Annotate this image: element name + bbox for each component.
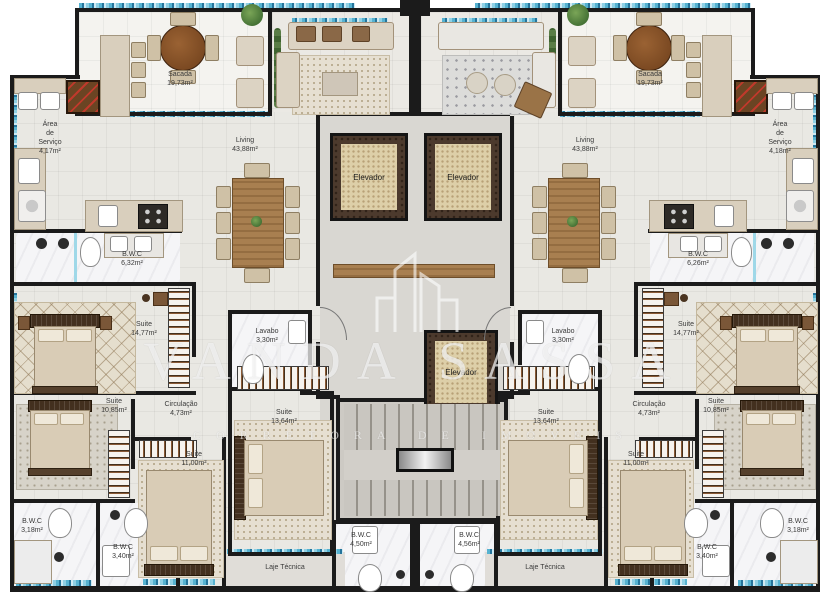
pillow [34,413,58,425]
armchair-balcony-right-1 [568,36,596,66]
room-label-laje-right: Laje Técnica [503,563,587,572]
sofa-cushion [352,26,370,42]
floor-plan: Elevador Elevador Elevador [0,0,830,600]
room-label-sacada-left: Sacada19,73m² [140,70,220,88]
wall-hall-connector-left [316,395,340,399]
pillow [654,546,682,561]
room-label-sacada-right: Sacada19,73m² [610,70,690,88]
nightstand [720,316,732,330]
stairs-rail [396,448,454,472]
room-label-suite10-right: Suite10,85m² [687,397,745,415]
table-plant [251,216,262,227]
dining-chair [601,186,616,208]
laundry-sink [18,92,38,110]
dining-chair [562,163,588,178]
toilet-bwc-center-left [358,564,382,592]
watermark-subtitle: CORRETORA DE IMÓVEIS [0,428,830,443]
closet-item [680,294,688,302]
dining-chair [216,186,231,208]
pillow [624,546,652,561]
watermark-title: VANDA SASSA [0,330,830,392]
dining-chair [285,186,300,208]
room-label-suite13-left: Suite13,64m² [252,408,316,426]
elevator-shaft-1: Elevador [330,133,408,221]
toilet-master-left [80,237,101,267]
round-table-left [160,25,206,71]
pillow [772,413,796,425]
pillow [746,413,770,425]
pillow [569,478,584,508]
headboard-suite11-left [144,564,214,576]
elevator-shaft-2: Elevador [424,133,502,221]
dining-chair [216,238,231,260]
dining-chair [285,238,300,260]
room-label-living-left: Living43,88m² [205,136,285,154]
pendant-light [783,238,794,249]
stairs-upper-flight [344,404,500,450]
wall-suite13-right-right [598,391,602,556]
room-label-circulacao-left: Circulação4,73m² [148,400,214,418]
sofa-cushion [322,26,342,42]
barbecue-left [66,80,100,114]
room-label-bwc-center-left: B.W.C4,50m² [330,531,392,549]
watermark-logo [365,240,465,332]
wall-divider-balcony-left [268,8,272,115]
shower-glass-right [753,233,756,282]
wall-divider-balcony-right [558,8,562,115]
fixture [110,510,120,520]
nightstand [802,316,814,330]
wall-bwc-center-divider [410,520,420,587]
pillow [150,546,178,561]
wall-bwc6-bottom-left [12,282,196,286]
pillow [248,478,263,508]
pillow [569,444,584,474]
wall-suite10-bottom-left [12,499,135,503]
room-label-suite10-left: Suite10,85m² [85,397,143,415]
closet-item [664,292,679,306]
shower-bwc318-left [14,540,52,584]
closet-item [153,292,168,306]
room-label-suite13-right: Suite13,64m² [514,408,578,426]
chair [170,12,196,26]
toilet-bwc340-left [124,508,148,538]
elevator-2-label: Elevador [447,173,479,182]
elevator-1-label: Elevador [353,173,385,182]
dining-chair [562,268,588,283]
room-label-suite11-right: Suite11,00m² [604,450,668,468]
closet-item [142,294,150,302]
room-label-bwc318-left: B.W.C3,18m² [6,517,58,535]
chair [147,35,161,61]
chair [613,35,627,61]
room-label-bwc-center-right: B.W.C4,56m² [438,531,500,549]
shower-bwc318-right [780,540,818,584]
chair [636,12,662,26]
shower-glass-left [74,233,77,282]
room-label-servico-left: Área de Serviço4,17m² [28,120,72,156]
armchair-balcony-right-2 [568,78,596,108]
wall-suite13-bottom-right [496,552,602,556]
kitchen-sink [792,158,814,184]
dining-chair [532,212,547,234]
sofa-right [438,22,544,50]
laundry-sink [794,92,814,110]
stool [686,42,701,58]
toilet-master-right [731,237,752,267]
wall-balcony-left-side [75,8,79,78]
sofa-side-left [276,52,300,108]
stairs-lower-flight [344,480,500,516]
wall-suite13-bottom-left [228,552,334,556]
room-label-servico-right: Área de Serviço4,18m² [758,120,802,156]
pendant-light [58,238,69,249]
dining-chair [601,238,616,260]
room-label-bwc-master-right: B.W.C6,26m² [666,250,730,268]
room-label-bwc340-right: B.W.C3,40m² [679,543,735,561]
room-label-laje-left: Laje Técnica [243,563,327,572]
wall-stairs-left [336,398,340,522]
bench-suite10-right [740,468,804,476]
wall-bwc6-bottom-right [634,282,818,286]
wall-bwc-center-top-left [332,520,412,524]
room-label-living-right: Living43,88m² [545,136,625,154]
barbecue-right [734,80,768,114]
pouf-right-1 [466,72,488,94]
plant-right [567,4,589,26]
wall-balcony-right-side [751,8,755,78]
bench-suite10-left [28,468,92,476]
nightstand [100,316,112,330]
pouf-right-2 [494,74,516,96]
room-label-bwc318-right: B.W.C3,18m² [772,517,824,535]
wall-lavabo-top-left [228,310,312,314]
dining-chair [532,186,547,208]
dining-chair [532,238,547,260]
room-label-circulacao-right: Circulação4,73m² [616,400,682,418]
washer-left [18,190,46,222]
laundry-sink [40,92,60,110]
fixture-bwc-center-left [396,570,405,579]
room-label-bwc-master-left: B.W.C6,32m² [100,250,164,268]
pillow [248,444,263,474]
wall-suite10-bottom-right [695,499,818,503]
armchair-balcony-left-1 [236,36,264,66]
wall-hall-right-upper [510,116,514,306]
pillow [180,546,208,561]
pendant-light [36,238,47,249]
fixture-bwc-center-right [425,570,434,579]
island-sink [98,205,118,227]
wall-lavabo-top-right [518,310,602,314]
fixture [54,552,64,562]
wall-center-divider [409,12,421,115]
room-label-suite11-left: Suite11,00m² [162,450,226,468]
toilet-bwc340-right [684,508,708,538]
chair [205,35,219,61]
armchair-balcony-left-2 [236,78,264,108]
coffee-table-left [322,72,358,96]
nightstand [18,316,30,330]
dining-chair [244,268,270,283]
pillow [60,413,84,425]
stove-left [138,204,168,229]
fixture [766,552,776,562]
dining-chair [601,212,616,234]
table-plant [567,216,578,227]
dining-chair [244,163,270,178]
kitchen-sink [18,158,40,184]
fixture [710,510,720,520]
wall-hall-left-upper [316,116,320,306]
balcony-counter-left [100,35,130,117]
washer-right [786,190,814,222]
chair [671,35,685,61]
dining-chair [216,212,231,234]
wall-bwc-center-top-right [418,520,498,524]
dining-chair [285,212,300,234]
island-sink [714,205,734,227]
wall-suite13-left-left [228,391,232,556]
headboard-suite11-right [618,564,688,576]
room-label-bwc340-left: B.W.C3,40m² [95,543,151,561]
stove-right [664,204,694,229]
round-table-right [626,25,672,71]
toilet-bwc-center-right [450,564,474,592]
pendant-light [761,238,772,249]
plant-left [241,4,263,26]
sofa-cushion [296,26,316,42]
laundry-sink [772,92,792,110]
balcony-counter-right [702,35,732,117]
stool [131,42,146,58]
